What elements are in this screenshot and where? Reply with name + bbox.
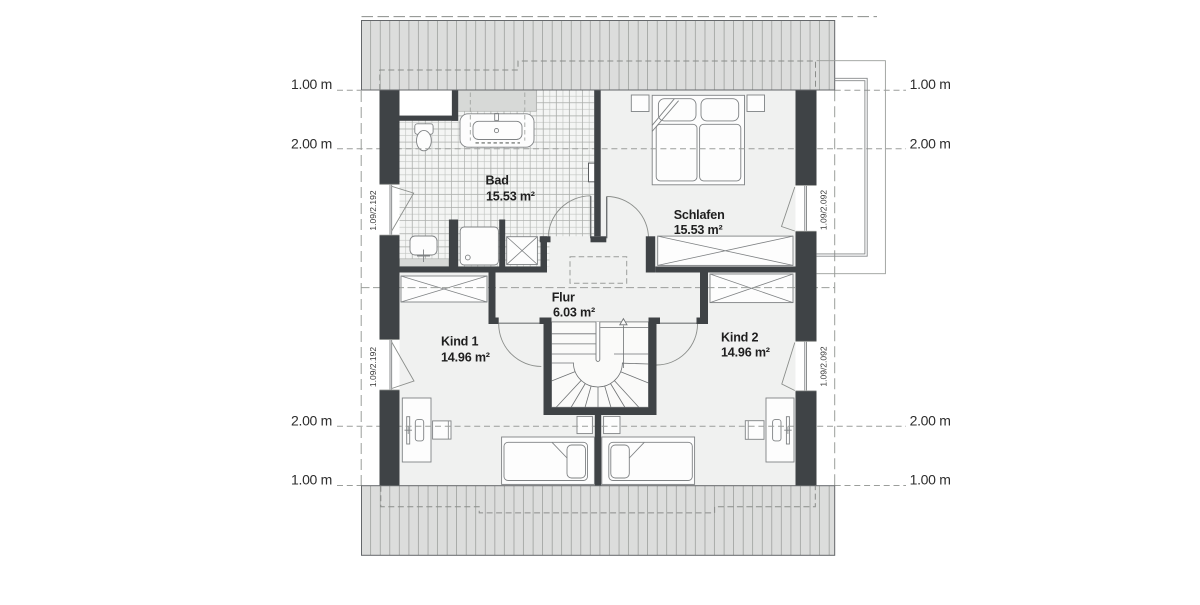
svg-text:Kind 1: Kind 1 <box>441 334 478 348</box>
svg-text:Bad: Bad <box>486 174 509 188</box>
svg-text:1.00 m: 1.00 m <box>291 76 332 92</box>
svg-text:2.00 m: 2.00 m <box>291 136 332 152</box>
svg-text:1.00 m: 1.00 m <box>910 472 951 488</box>
svg-text:15.53 m²: 15.53 m² <box>674 223 723 237</box>
svg-text:14.96 m²: 14.96 m² <box>721 346 770 360</box>
svg-text:1.09/2.192: 1.09/2.192 <box>368 190 378 230</box>
svg-text:1.09/2.092: 1.09/2.092 <box>819 346 829 386</box>
svg-text:Kind 2: Kind 2 <box>721 330 758 344</box>
svg-text:1.00 m: 1.00 m <box>910 76 951 92</box>
svg-text:1.09/2.092: 1.09/2.092 <box>819 190 829 230</box>
svg-text:1.00 m: 1.00 m <box>291 472 332 488</box>
svg-text:2.00 m: 2.00 m <box>291 412 332 428</box>
svg-text:6.03 m²: 6.03 m² <box>553 306 595 320</box>
svg-text:2.00 m: 2.00 m <box>910 136 951 152</box>
svg-text:15.53 m²: 15.53 m² <box>486 189 535 203</box>
svg-text:Schlafen: Schlafen <box>674 208 725 222</box>
svg-text:1.09/2.192: 1.09/2.192 <box>368 347 378 387</box>
svg-text:2.00 m: 2.00 m <box>910 412 951 428</box>
svg-text:Flur: Flur <box>552 290 575 304</box>
svg-text:14.96 m²: 14.96 m² <box>441 350 490 364</box>
